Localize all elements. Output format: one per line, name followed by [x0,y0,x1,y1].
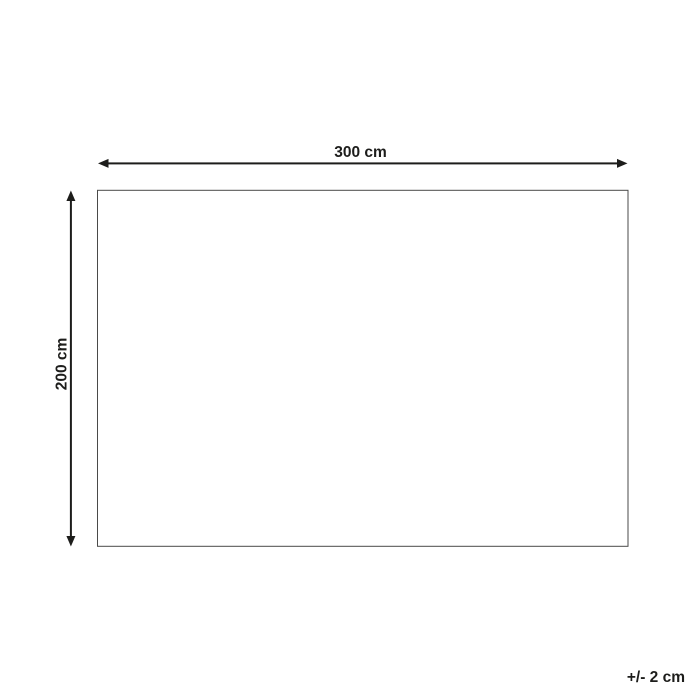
svg-text:200 cm: 200 cm [54,338,71,391]
svg-text:300 cm: 300 cm [334,144,387,161]
svg-text:+/- 2 cm: +/- 2 cm [627,669,685,686]
